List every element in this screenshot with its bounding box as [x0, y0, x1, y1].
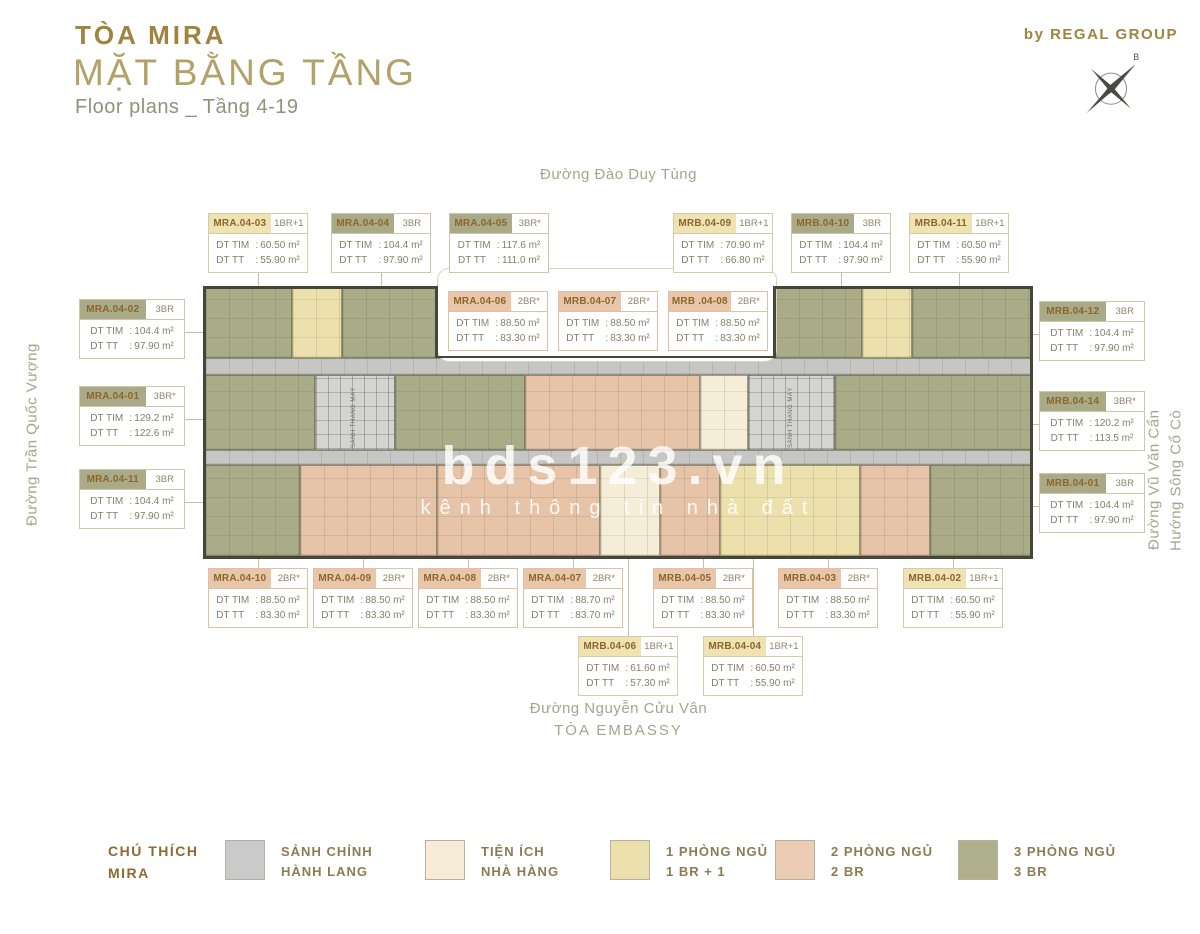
legend-swatch [425, 840, 465, 880]
unit-type: 1BR+1 [736, 214, 772, 233]
page-title: TÒA MIRA [75, 20, 227, 51]
compass-north-label: B [1133, 52, 1139, 62]
unit-card-body: DT TIM:88.50 m² DT TT:83.30 m² [558, 312, 658, 351]
unit-area-tim: DT TIM:104.4 m² [82, 494, 182, 509]
unit-area-tt: DT TT:97.90 m² [794, 253, 888, 268]
unit-area-tt: DT TT:97.90 m² [82, 339, 182, 354]
unit-area-tt: DT TT:83.30 m² [211, 608, 305, 623]
unit-card-body: DT TIM:61.60 m² DT TT:57.30 m² [578, 657, 678, 696]
leader-line [753, 557, 754, 636]
plan-unit-block [860, 465, 930, 556]
developer-byline: by REGAL GROUP [1024, 26, 1178, 43]
unit-card-header: MRA.04-01 3BR* [79, 386, 185, 407]
unit-area-tim: DT TIM:88.50 m² [451, 316, 545, 331]
unit-card-mrb-04-14: MRB.04-14 3BR* DT TIM:120.2 m² DT TT:113… [1039, 391, 1145, 451]
unit-area-tt: DT TT:83.30 m² [421, 608, 515, 623]
unit-area-tim: DT TIM:88.50 m² [781, 593, 875, 608]
unit-card-mra-04-10: MRA.04-10 2BR* DT TIM:88.50 m² DT TT:83.… [208, 568, 308, 628]
unit-type: 2BR* [586, 569, 622, 588]
unit-code: MRA.04-07 [524, 569, 586, 588]
street-label-right-1: Đường Vũ Văn Cẩn [1144, 330, 1164, 630]
unit-card-body: DT TIM:104.4 m² DT TT:97.90 m² [79, 320, 185, 359]
plan-outer-wall [205, 286, 437, 289]
unit-code: MRB.04-11 [910, 214, 972, 233]
unit-type: 2BR* [621, 292, 657, 311]
unit-area-tim: DT TIM:88.50 m² [316, 593, 410, 608]
unit-card-header: MRB.04-07 2BR* [558, 291, 658, 312]
street-label-top: Đường Đào Duy Tùng [205, 166, 1032, 183]
plan-unit-block [300, 465, 437, 556]
unit-card-mrb-04-12: MRB.04-12 3BR DT TIM:104.4 m² DT TT:97.9… [1039, 301, 1145, 361]
unit-area-tt: DT TT:97.90 m² [1042, 341, 1142, 356]
unit-card-header: MRB .04-08 2BR* [668, 291, 768, 312]
plan-unit-block [205, 288, 292, 358]
unit-card-body: DT TIM:104.4 m² DT TT:97.90 m² [1039, 322, 1145, 361]
unit-card-header: MRB.04-11 1BR+1 [909, 213, 1009, 234]
plan-unit-block [437, 465, 600, 556]
unit-area-tt: DT TT:83.30 m² [451, 331, 545, 346]
plan-unit-block [292, 288, 342, 358]
unit-code: MRA.04-11 [80, 470, 146, 489]
unit-card-header: MRA.04-05 3BR* [449, 213, 549, 234]
unit-code: MRA.04-10 [209, 569, 271, 588]
legend-label: TIỆN ÍCHNHÀ HÀNG [481, 840, 559, 882]
unit-area-tt: DT TT:66.80 m² [676, 253, 770, 268]
unit-card-header: MRA.04-09 2BR* [313, 568, 413, 589]
unit-area-tim: DT TIM:60.50 m² [912, 238, 1006, 253]
plan-outer-wall [437, 356, 775, 358]
plan-unit-block [525, 375, 700, 450]
unit-type: 2BR* [716, 569, 752, 588]
unit-area-tim: DT TIM:104.4 m² [82, 324, 182, 339]
unit-area-tim: DT TIM:88.50 m² [561, 316, 655, 331]
plan-outer-wall [775, 286, 1032, 289]
unit-card-mra-04-06: MRA.04-06 2BR* DT TIM:88.50 m² DT TT:83.… [448, 291, 548, 351]
unit-code: MRA.04-03 [209, 214, 271, 233]
unit-area-tt: DT TT:55.90 m² [912, 253, 1006, 268]
unit-code: MRB.04-05 [654, 569, 716, 588]
unit-card-mra-04-01: MRA.04-01 3BR* DT TIM:129.2 m² DT TT:122… [79, 386, 185, 446]
unit-card-body: DT TIM:88.70 m² DT TT:83.70 m² [523, 589, 623, 628]
unit-card-header: MRA.04-08 2BR* [418, 568, 518, 589]
legend-title-line1: CHÚ THÍCH [108, 840, 199, 862]
unit-area-tt: DT TT:55.90 m² [211, 253, 305, 268]
unit-type: 3BR* [1106, 392, 1144, 411]
plan-unit-block [205, 465, 300, 556]
plan-outer-wall [773, 286, 776, 358]
unit-type: 1BR+1 [966, 569, 1002, 588]
unit-code: MRA.04-09 [314, 569, 376, 588]
unit-type: 1BR+1 [972, 214, 1008, 233]
unit-area-tim: DT TIM:70.90 m² [676, 238, 770, 253]
unit-area-tim: DT TIM:104.4 m² [334, 238, 428, 253]
unit-type: 2BR* [271, 569, 307, 588]
unit-card-header: MRB.04-14 3BR* [1039, 391, 1145, 412]
unit-area-tim: DT TIM:104.4 m² [1042, 326, 1142, 341]
unit-code: MRB.04-07 [559, 292, 621, 311]
core-label: SẢNH THANG MÁY [351, 378, 357, 448]
legend-label: 1 PHÒNG NGỦ1 BR + 1 [666, 840, 768, 882]
unit-card-mrb-04-02: MRB.04-02 1BR+1 DT TIM:60.50 m² DT TT:55… [903, 568, 1003, 628]
legend-item-3: 2 PHÒNG NGỦ2 BR [775, 840, 933, 882]
unit-area-tim: DT TIM:61.60 m² [581, 661, 675, 676]
unit-type: 2BR* [511, 292, 547, 311]
unit-card-header: MRB.04-10 3BR [791, 213, 891, 234]
unit-type: 2BR* [481, 569, 517, 588]
unit-card-header: MRB.04-02 1BR+1 [903, 568, 1003, 589]
page-subtitle: MẶT BẰNG TẦNG [73, 52, 417, 94]
plan-unit-block [342, 288, 437, 358]
unit-area-tt: DT TT:83.30 m² [316, 608, 410, 623]
unit-card-header: MRB.04-01 3BR [1039, 473, 1145, 494]
unit-code: MRB.04-14 [1040, 392, 1106, 411]
unit-type: 3BR [146, 300, 184, 319]
legend-item-4: 3 PHÒNG NGỦ3 BR [958, 840, 1116, 882]
unit-card-header: MRA.04-10 2BR* [208, 568, 308, 589]
legend-label: 2 PHÒNG NGỦ2 BR [831, 840, 933, 882]
plan-unit-block [835, 375, 1032, 450]
unit-code: MRA.04-01 [80, 387, 146, 406]
unit-type: 3BR* [146, 387, 184, 406]
unit-type: 1BR+1 [271, 214, 307, 233]
unit-card-mrb-04-06: MRB.04-06 1BR+1 DT TIM:61.60 m² DT TT:57… [578, 636, 678, 696]
unit-card-mra-04-08: MRA.04-08 2BR* DT TIM:88.50 m² DT TT:83.… [418, 568, 518, 628]
unit-card-body: DT TIM:88.50 m² DT TT:83.30 m² [778, 589, 878, 628]
plan-outer-wall [1030, 286, 1033, 559]
leader-line [628, 557, 629, 636]
unit-area-tt: DT TT:97.90 m² [1042, 513, 1142, 528]
legend-swatch [610, 840, 650, 880]
unit-card-header: MRB.04-04 1BR+1 [703, 636, 803, 657]
unit-card-body: DT TIM:70.90 m² DT TT:66.80 m² [673, 234, 773, 273]
unit-card-header: MRA.04-02 3BR [79, 299, 185, 320]
unit-card-body: DT TIM:60.50 m² DT TT:55.90 m² [909, 234, 1009, 273]
unit-card-body: DT TIM:117.6 m² DT TT:111.0 m² [449, 234, 549, 273]
unit-area-tim: DT TIM:60.50 m² [706, 661, 800, 676]
unit-card-body: DT TIM:88.50 m² DT TT:83.30 m² [668, 312, 768, 351]
leader-line [1032, 424, 1039, 425]
unit-card-mrb-04-01: MRB.04-01 3BR DT TIM:104.4 m² DT TT:97.9… [1039, 473, 1145, 533]
unit-card-mrb-04-05: MRB.04-05 2BR* DT TIM:88.50 m² DT TT:83.… [653, 568, 753, 628]
unit-code: MRA.04-04 [332, 214, 394, 233]
unit-area-tt: DT TT:111.0 m² [452, 253, 546, 268]
unit-card-mra-04-11: MRA.04-11 3BR DT TIM:104.4 m² DT TT:97.9… [79, 469, 185, 529]
unit-area-tim: DT TIM:129.2 m² [82, 411, 182, 426]
street-label-bottom: Đường Nguyễn Cửu Vân [205, 700, 1032, 717]
plan-unit-block [720, 465, 860, 556]
floor-range-label: Floor plans _ Tầng 4-19 [75, 96, 298, 119]
unit-card-header: MRA.04-07 2BR* [523, 568, 623, 589]
plan-unit-block [395, 375, 525, 450]
unit-code: MRB.04-04 [704, 637, 766, 656]
street-label-right-2: Hướng Sông Cổ Cò [1166, 330, 1186, 630]
plan-unit-block [600, 465, 660, 556]
unit-area-tim: DT TIM:88.50 m² [211, 593, 305, 608]
unit-card-mra-04-07: MRA.04-07 2BR* DT TIM:88.70 m² DT TT:83.… [523, 568, 623, 628]
plan-unit-block [930, 465, 1032, 556]
unit-area-tt: DT TT:122.6 m² [82, 426, 182, 441]
leader-line [185, 332, 205, 333]
plan-unit-block [205, 375, 315, 450]
unit-card-body: DT TIM:88.50 m² DT TT:83.30 m² [208, 589, 308, 628]
plan-unit-block [775, 288, 862, 358]
street-label-left: Đường Trần Quốc Vượng [22, 285, 42, 585]
legend-title-line2: MIRA [108, 862, 199, 884]
unit-area-tim: DT TIM:120.2 m² [1042, 416, 1142, 431]
plan-unit-block [660, 465, 720, 556]
legend-item-1: TIỆN ÍCHNHÀ HÀNG [425, 840, 559, 882]
plan-unit-block [700, 375, 748, 450]
unit-card-mrb-04-08: MRB .04-08 2BR* DT TIM:88.50 m² DT TT:83… [668, 291, 768, 351]
unit-code: MRA.04-06 [449, 292, 511, 311]
leader-line [1032, 506, 1039, 507]
unit-card-body: DT TIM:60.50 m² DT TT:55.90 m² [703, 657, 803, 696]
unit-code: MRB.04-10 [792, 214, 854, 233]
unit-type: 3BR [146, 470, 184, 489]
unit-card-header: MRB.04-03 2BR* [778, 568, 878, 589]
legend-swatch [225, 840, 265, 880]
unit-area-tt: DT TT:55.90 m² [906, 608, 1000, 623]
unit-code: MRB .04-08 [669, 292, 731, 311]
unit-card-body: DT TIM:88.50 m² DT TT:83.30 m² [653, 589, 753, 628]
unit-type: 3BR [1106, 474, 1144, 493]
unit-card-mra-04-03: MRA.04-03 1BR+1 DT TIM:60.50 m² DT TT:55… [208, 213, 308, 273]
unit-code: MRB.04-03 [779, 569, 841, 588]
plan-unit-block [862, 288, 912, 358]
legend-item-2: 1 PHÒNG NGỦ1 BR + 1 [610, 840, 768, 882]
compass-icon: B [1074, 48, 1148, 127]
unit-type: 1BR+1 [766, 637, 802, 656]
unit-area-tt: DT TT:83.30 m² [671, 331, 765, 346]
unit-card-mra-04-09: MRA.04-09 2BR* DT TIM:88.50 m² DT TT:83.… [313, 568, 413, 628]
legend-item-0: SẢNH CHỈNHHÀNH LANG [225, 840, 373, 882]
unit-code: MRB.04-06 [579, 637, 641, 656]
unit-area-tt: DT TT:83.70 m² [526, 608, 620, 623]
unit-type: 3BR [394, 214, 430, 233]
unit-card-mrb-04-07: MRB.04-07 2BR* DT TIM:88.50 m² DT TT:83.… [558, 291, 658, 351]
unit-card-body: DT TIM:60.50 m² DT TT:55.90 m² [208, 234, 308, 273]
unit-card-mrb-04-11: MRB.04-11 1BR+1 DT TIM:60.50 m² DT TT:55… [909, 213, 1009, 273]
unit-code: MRB.04-09 [674, 214, 736, 233]
unit-area-tim: DT TIM:104.4 m² [794, 238, 888, 253]
legend-swatch [958, 840, 998, 880]
unit-type: 2BR* [376, 569, 412, 588]
unit-area-tt: DT TT:83.30 m² [656, 608, 750, 623]
leader-line [185, 419, 205, 420]
unit-area-tt: DT TT:83.30 m² [781, 608, 875, 623]
unit-area-tim: DT TIM:88.70 m² [526, 593, 620, 608]
unit-card-header: MRA.04-11 3BR [79, 469, 185, 490]
core-label: SẢNH THANG MÁY [788, 378, 794, 448]
unit-code: MRA.04-05 [450, 214, 512, 233]
unit-card-body: DT TIM:88.50 m² DT TT:83.30 m² [418, 589, 518, 628]
unit-card-header: MRA.04-06 2BR* [448, 291, 548, 312]
unit-card-mrb-04-04: MRB.04-04 1BR+1 DT TIM:60.50 m² DT TT:55… [703, 636, 803, 696]
legend-label: 3 PHÒNG NGỦ3 BR [1014, 840, 1116, 882]
unit-type: 3BR [854, 214, 890, 233]
unit-area-tt: DT TT:83.30 m² [561, 331, 655, 346]
unit-card-mrb-04-09: MRB.04-09 1BR+1 DT TIM:70.90 m² DT TT:66… [673, 213, 773, 273]
unit-card-mra-04-04: MRA.04-04 3BR DT TIM:104.4 m² DT TT:97.9… [331, 213, 431, 273]
leader-line [1032, 334, 1039, 335]
unit-card-mrb-04-03: MRB.04-03 2BR* DT TIM:88.50 m² DT TT:83.… [778, 568, 878, 628]
unit-area-tim: DT TIM:88.50 m² [656, 593, 750, 608]
plan-outer-wall [203, 286, 206, 559]
unit-area-tim: DT TIM:117.6 m² [452, 238, 546, 253]
unit-type: 2BR* [731, 292, 767, 311]
unit-card-body: DT TIM:104.4 m² DT TT:97.90 m² [791, 234, 891, 273]
unit-area-tt: DT TT:113.5 m² [1042, 431, 1142, 446]
unit-area-tt: DT TT:57.30 m² [581, 676, 675, 691]
unit-card-body: DT TIM:104.4 m² DT TT:97.90 m² [331, 234, 431, 273]
unit-card-header: MRB.04-12 3BR [1039, 301, 1145, 322]
unit-type: 3BR [1106, 302, 1144, 321]
unit-area-tim: DT TIM:60.50 m² [906, 593, 1000, 608]
unit-card-body: DT TIM:88.50 m² DT TT:83.30 m² [448, 312, 548, 351]
unit-type: 2BR* [841, 569, 877, 588]
unit-area-tt: DT TT:55.90 m² [706, 676, 800, 691]
legend-title: CHÚ THÍCH MIRA [108, 840, 199, 885]
legend-swatch [775, 840, 815, 880]
neighbor-tower-label: TÒA EMBASSY [205, 722, 1032, 739]
leader-line [185, 502, 205, 503]
unit-card-header: MRB.04-06 1BR+1 [578, 636, 678, 657]
unit-card-body: DT TIM:104.4 m² DT TT:97.90 m² [1039, 494, 1145, 533]
unit-area-tt: DT TT:97.90 m² [82, 509, 182, 524]
unit-card-header: MRA.04-04 3BR [331, 213, 431, 234]
unit-card-body: DT TIM:120.2 m² DT TT:113.5 m² [1039, 412, 1145, 451]
unit-card-body: DT TIM:88.50 m² DT TT:83.30 m² [313, 589, 413, 628]
unit-type: 3BR* [512, 214, 548, 233]
unit-card-header: MRB.04-09 1BR+1 [673, 213, 773, 234]
unit-area-tim: DT TIM:88.50 m² [671, 316, 765, 331]
unit-card-header: MRA.04-03 1BR+1 [208, 213, 308, 234]
unit-card-mra-04-02: MRA.04-02 3BR DT TIM:104.4 m² DT TT:97.9… [79, 299, 185, 359]
unit-code: MRA.04-02 [80, 300, 146, 319]
unit-code: MRB.04-01 [1040, 474, 1106, 493]
unit-code: MRA.04-08 [419, 569, 481, 588]
unit-card-mrb-04-10: MRB.04-10 3BR DT TIM:104.4 m² DT TT:97.9… [791, 213, 891, 273]
unit-card-header: MRB.04-05 2BR* [653, 568, 753, 589]
plan-outer-wall [435, 286, 438, 358]
unit-area-tt: DT TT:97.90 m² [334, 253, 428, 268]
legend-label: SẢNH CHỈNHHÀNH LANG [281, 840, 373, 882]
plan-unit-block [205, 450, 1032, 465]
unit-code: MRB.04-12 [1040, 302, 1106, 321]
unit-area-tim: DT TIM:60.50 m² [211, 238, 305, 253]
unit-code: MRB.04-02 [904, 569, 966, 588]
unit-area-tim: DT TIM:104.4 m² [1042, 498, 1142, 513]
plan-outer-wall [205, 556, 1032, 559]
unit-card-body: DT TIM:104.4 m² DT TT:97.90 m² [79, 490, 185, 529]
unit-card-body: DT TIM:60.50 m² DT TT:55.90 m² [903, 589, 1003, 628]
unit-area-tim: DT TIM:88.50 m² [421, 593, 515, 608]
unit-type: 1BR+1 [641, 637, 677, 656]
plan-unit-block [912, 288, 1032, 358]
unit-card-body: DT TIM:129.2 m² DT TT:122.6 m² [79, 407, 185, 446]
unit-card-mra-04-05: MRA.04-05 3BR* DT TIM:117.6 m² DT TT:111… [449, 213, 549, 273]
